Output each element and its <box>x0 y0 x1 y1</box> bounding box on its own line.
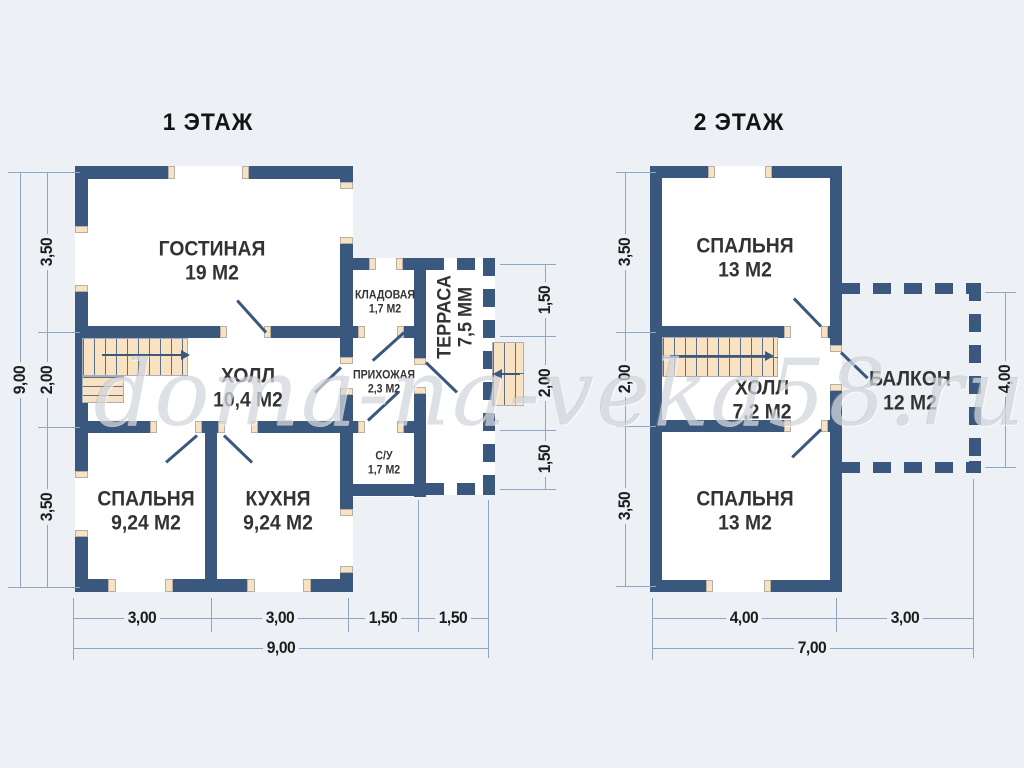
balcony-dashed-boundary <box>842 283 981 294</box>
window <box>376 258 396 270</box>
floor1-title: 1 ЭТАЖ <box>163 109 254 137</box>
room-area: 9,24 М2 <box>97 511 194 535</box>
window-jamb <box>168 166 175 179</box>
door-opening <box>365 421 397 433</box>
room-label-wc: С/У 1,7 М2 <box>368 450 400 479</box>
floor-plan-canvas: 1 ЭТАЖ 2 ЭТАЖ <box>0 0 1024 768</box>
terrace-corner-post <box>483 258 495 270</box>
room-name: С/У <box>368 450 400 464</box>
staircase-f1-lower-flight <box>82 376 124 403</box>
room-area: 1,7 М2 <box>355 303 415 317</box>
window-jamb <box>247 579 255 592</box>
window <box>340 516 353 566</box>
staircase-f2-mid-line <box>662 357 778 358</box>
wall-f1-annex-bottom <box>353 484 426 496</box>
extension-line <box>488 500 489 658</box>
room-name: ХОЛЛ <box>213 364 283 388</box>
dimension-label: 2,00 <box>37 362 57 398</box>
extension-line <box>500 430 556 431</box>
dimension-label: 3,50 <box>615 234 635 270</box>
stair-direction-line <box>670 355 766 357</box>
door-jamb <box>414 387 426 394</box>
window <box>175 166 242 179</box>
room-area: 1,7 М2 <box>368 464 400 478</box>
window-jamb <box>340 182 353 189</box>
room-label-entry: ПРИХОЖАЯ 2,3 М2 <box>353 369 415 398</box>
terrace-corner-post <box>483 483 495 495</box>
door-jamb <box>195 421 202 433</box>
window <box>715 166 765 178</box>
window-jamb <box>369 258 376 270</box>
room-label-kitchen: КУХНЯ 9,24 М2 <box>243 487 313 534</box>
window-jamb <box>340 237 353 244</box>
window-jamb <box>108 579 116 592</box>
room-name: КУХНЯ <box>243 487 313 511</box>
staircase-f1-upper-flight <box>82 338 188 376</box>
wall-f2-right-lower <box>830 391 842 592</box>
extension-line <box>38 332 80 333</box>
balcony-dashed-boundary <box>969 283 981 473</box>
room-label-hall-f2: ХОЛЛ 7,2 М2 <box>732 376 791 423</box>
dimension-label: 4,00 <box>726 608 762 628</box>
door-opening <box>157 421 195 433</box>
window <box>116 579 165 592</box>
extension-line <box>8 587 80 588</box>
room-area: 7,5 ММ <box>456 275 477 359</box>
window-jamb <box>396 258 403 270</box>
window-jamb <box>340 509 353 516</box>
floor2-title: 2 ЭТАЖ <box>694 109 785 137</box>
room-label-terrace: ТЕРРАСА 7,5 ММ <box>435 275 478 359</box>
door-opening <box>830 352 842 384</box>
balcony-dashed-boundary <box>842 462 981 473</box>
door-swing <box>840 351 869 379</box>
dimension-label: 2,00 <box>535 365 555 401</box>
room-label-bedroom-bottom: СПАЛЬНЯ 13 М2 <box>696 487 793 534</box>
extension-line <box>73 598 74 660</box>
window-jamb <box>242 166 249 179</box>
stair-direction-arrow <box>493 369 502 379</box>
room-area: 7,2 М2 <box>732 400 791 424</box>
window-jamb <box>765 166 772 178</box>
dimension-label: 9,00 <box>10 362 30 398</box>
door-jamb <box>218 421 225 433</box>
window-jamb <box>75 471 88 478</box>
window-jamb <box>303 579 311 592</box>
extension-line <box>500 264 556 265</box>
door-jamb <box>340 388 353 395</box>
window-jamb <box>706 580 713 592</box>
door-jamb <box>414 358 426 365</box>
room-label-storage: КЛАДОВАЯ 1,7 М2 <box>355 289 415 318</box>
door-jamb <box>220 326 227 338</box>
room-label-bedroom-f1: СПАЛЬНЯ 9,24 М2 <box>97 487 194 534</box>
dimension-label: 1,50 <box>535 441 555 477</box>
wall-f2-divider-stub <box>828 326 830 338</box>
room-area: 9,24 М2 <box>243 511 313 535</box>
extension-line <box>500 489 556 490</box>
room-area: 13 М2 <box>696 258 793 282</box>
dimension-label: 3,50 <box>37 234 57 270</box>
room-area: 12 М2 <box>869 391 951 415</box>
door-jamb <box>830 345 842 352</box>
room-label-living: ГОСТИНАЯ 19 М2 <box>159 237 266 284</box>
door-opening <box>414 365 426 387</box>
room-area: 19 М2 <box>159 261 266 285</box>
extension-line <box>418 500 419 632</box>
window-jamb <box>75 530 88 537</box>
wall-f2-right-upper <box>830 166 842 345</box>
room-name: ТЕРРАСА <box>435 275 456 359</box>
extension-line <box>985 292 1016 293</box>
window-jamb <box>708 166 715 178</box>
door-jamb <box>784 326 791 338</box>
dimension-label: 9,00 <box>263 638 299 658</box>
stair-direction-line <box>102 354 182 356</box>
door-opening <box>791 326 821 338</box>
door-jamb <box>358 421 365 433</box>
wall-f1-hall-bedrooms-divider <box>88 421 340 433</box>
room-name: СПАЛЬНЯ <box>696 487 793 511</box>
room-name: КЛАДОВАЯ <box>355 289 415 303</box>
room-name: СПАЛЬНЯ <box>696 234 793 258</box>
dimension-label: 3,50 <box>37 489 57 525</box>
extension-line <box>616 332 656 333</box>
extension-line <box>38 427 80 428</box>
room-area: 13 М2 <box>696 511 793 535</box>
room-area: 10,4 М2 <box>213 388 283 412</box>
window <box>255 579 303 592</box>
room-name: ГОСТИНАЯ <box>159 237 266 261</box>
extension-line <box>616 426 656 427</box>
room-name: ХОЛЛ <box>732 376 791 400</box>
stair-direction-arrow <box>181 350 190 360</box>
extension-line <box>211 598 212 632</box>
door-jamb <box>397 421 404 433</box>
balcony-corner-post <box>969 283 981 295</box>
window <box>713 580 764 592</box>
extension-line <box>836 598 837 632</box>
dimension-label: 3,00 <box>124 608 160 628</box>
room-label-hall-f1: ХОЛЛ 10,4 М2 <box>213 364 283 411</box>
extension-line <box>348 598 349 632</box>
door-jamb <box>358 326 365 338</box>
window-jamb <box>75 226 88 233</box>
door-jamb <box>830 384 842 391</box>
window-jamb <box>75 285 88 292</box>
door-opening <box>365 326 397 338</box>
window-jamb <box>165 579 173 592</box>
window <box>75 478 88 530</box>
stair-direction-arrow <box>765 351 774 361</box>
wall-f2-left <box>650 166 662 592</box>
room-label-bedroom-top: СПАЛЬНЯ 13 М2 <box>696 234 793 281</box>
room-name: ПРИХОЖАЯ <box>353 369 415 383</box>
door-jamb <box>821 326 828 338</box>
extension-line <box>500 336 556 337</box>
door-opening <box>225 421 251 433</box>
dimension-label: 2,00 <box>615 361 635 397</box>
dimension-line <box>652 618 973 619</box>
dimension-label: 3,00 <box>262 608 298 628</box>
extension-line <box>616 172 656 173</box>
balcony-corner-post <box>969 461 981 473</box>
door-jamb <box>150 421 157 433</box>
room-label-balcony: БАЛКОН 12 М2 <box>869 367 951 414</box>
window <box>340 189 353 237</box>
wall-f1-bedroom-kitchen-divider <box>205 433 217 579</box>
room-name: БАЛКОН <box>869 367 951 391</box>
room-name: СПАЛЬНЯ <box>97 487 194 511</box>
extension-line <box>652 598 653 660</box>
window <box>75 233 88 285</box>
extension-line <box>616 586 656 587</box>
dimension-label: 3,00 <box>887 608 923 628</box>
dimension-label: 1,50 <box>365 608 401 628</box>
dimension-label: 1,50 <box>435 608 471 628</box>
extension-line <box>985 467 1016 468</box>
extension-line <box>973 479 974 658</box>
wall-f1-living-hall-divider <box>88 326 340 338</box>
door-opening <box>227 326 264 338</box>
window-jamb <box>340 566 353 573</box>
stair-direction-line <box>500 373 520 375</box>
door-jamb <box>251 421 258 433</box>
dimension-label: 1,50 <box>535 282 555 318</box>
wall-f2-divider-stub <box>828 420 830 432</box>
dimension-label: 7,00 <box>794 638 830 658</box>
dimension-label: 4,00 <box>995 361 1015 397</box>
room-area: 2,3 М2 <box>353 383 415 397</box>
extension-line <box>8 172 80 173</box>
window-jamb <box>764 580 771 592</box>
dimension-label: 3,50 <box>615 488 635 524</box>
door-jamb <box>340 357 353 364</box>
